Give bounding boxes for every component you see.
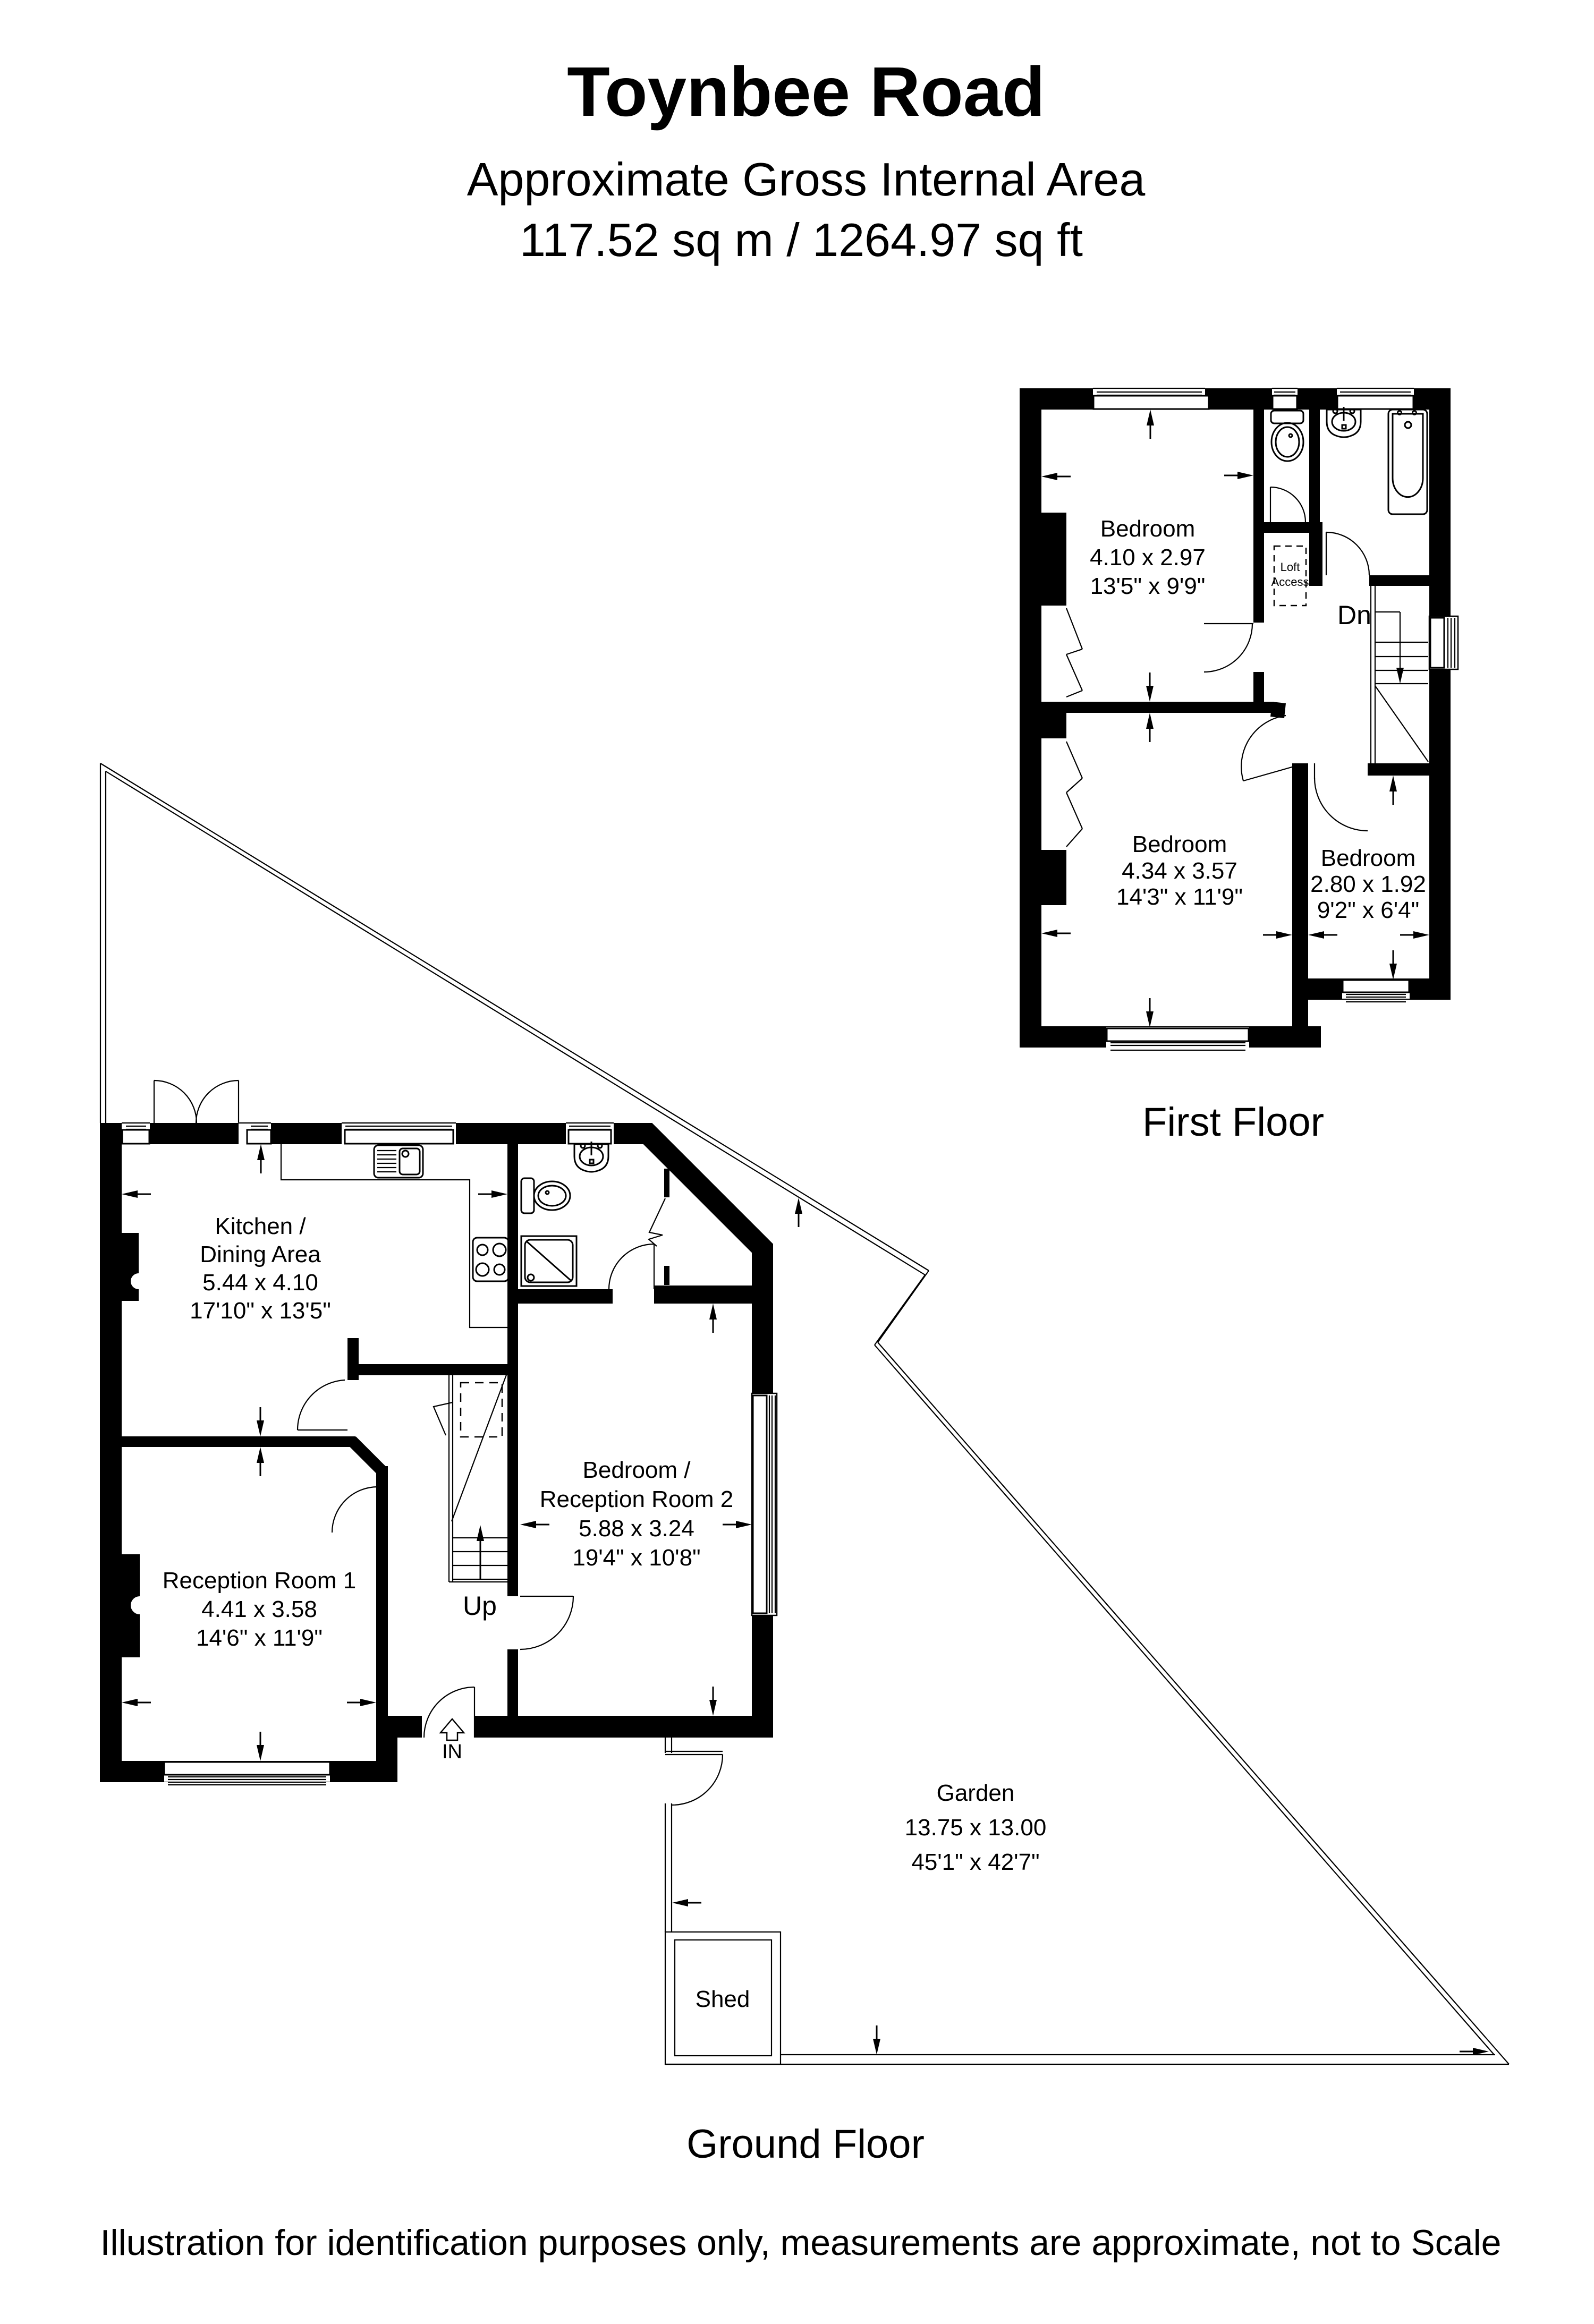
svg-text:IN: IN bbox=[442, 1741, 462, 1763]
svg-text:Shed: Shed bbox=[696, 1986, 750, 2012]
svg-text:13'5" x 9'9": 13'5" x 9'9" bbox=[1090, 573, 1206, 599]
svg-text:Access: Access bbox=[1271, 575, 1309, 589]
svg-text:117.52 sq m / 1264.97 sq ft: 117.52 sq m / 1264.97 sq ft bbox=[520, 214, 1083, 266]
svg-text:Ground Floor: Ground Floor bbox=[686, 2122, 925, 2167]
svg-text:Illustration for identificatio: Illustration for identification purposes… bbox=[100, 2223, 1502, 2263]
svg-text:Garden: Garden bbox=[937, 1780, 1015, 1806]
svg-text:Bedroom: Bedroom bbox=[1100, 516, 1195, 542]
svg-text:Dining Area: Dining Area bbox=[200, 1241, 321, 1267]
svg-text:5.44 x 4.10: 5.44 x 4.10 bbox=[202, 1270, 318, 1296]
svg-text:Reception Room 2: Reception Room 2 bbox=[540, 1486, 733, 1512]
svg-text:Approximate Gross Internal Are: Approximate Gross Internal Area bbox=[467, 153, 1146, 206]
svg-text:Bedroom: Bedroom bbox=[1321, 845, 1416, 871]
svg-text:4.34 x 3.57: 4.34 x 3.57 bbox=[1122, 858, 1237, 884]
svg-text:Loft: Loft bbox=[1281, 560, 1300, 574]
svg-text:Kitchen /: Kitchen / bbox=[215, 1213, 306, 1239]
svg-text:14'3" x 11'9": 14'3" x 11'9" bbox=[1116, 884, 1243, 910]
svg-text:Reception Room 1: Reception Room 1 bbox=[163, 1568, 356, 1594]
svg-text:13.75 x 13.00: 13.75 x 13.00 bbox=[905, 1815, 1047, 1841]
svg-text:Bedroom: Bedroom bbox=[1132, 831, 1227, 857]
svg-text:Up: Up bbox=[463, 1591, 497, 1621]
svg-text:9'2" x 6'4": 9'2" x 6'4" bbox=[1317, 897, 1419, 923]
svg-text:4.41 x 3.58: 4.41 x 3.58 bbox=[201, 1596, 317, 1622]
svg-text:First Floor: First Floor bbox=[1142, 1100, 1324, 1145]
svg-text:4.10 x 2.97: 4.10 x 2.97 bbox=[1090, 544, 1206, 571]
svg-text:17'10" x 13'5": 17'10" x 13'5" bbox=[190, 1298, 331, 1324]
svg-text:5.88 x 3.24: 5.88 x 3.24 bbox=[579, 1516, 694, 1542]
svg-text:2.80 x 1.92: 2.80 x 1.92 bbox=[1310, 871, 1426, 897]
svg-text:Dn: Dn bbox=[1337, 600, 1371, 630]
svg-text:45'1" x 42'7": 45'1" x 42'7" bbox=[911, 1849, 1039, 1875]
svg-text:19'4" x 10'8": 19'4" x 10'8" bbox=[572, 1545, 700, 1571]
svg-text:14'6" x 11'9": 14'6" x 11'9" bbox=[196, 1625, 323, 1651]
svg-text:Bedroom /: Bedroom / bbox=[583, 1457, 691, 1483]
svg-text:Toynbee Road: Toynbee Road bbox=[567, 53, 1045, 131]
